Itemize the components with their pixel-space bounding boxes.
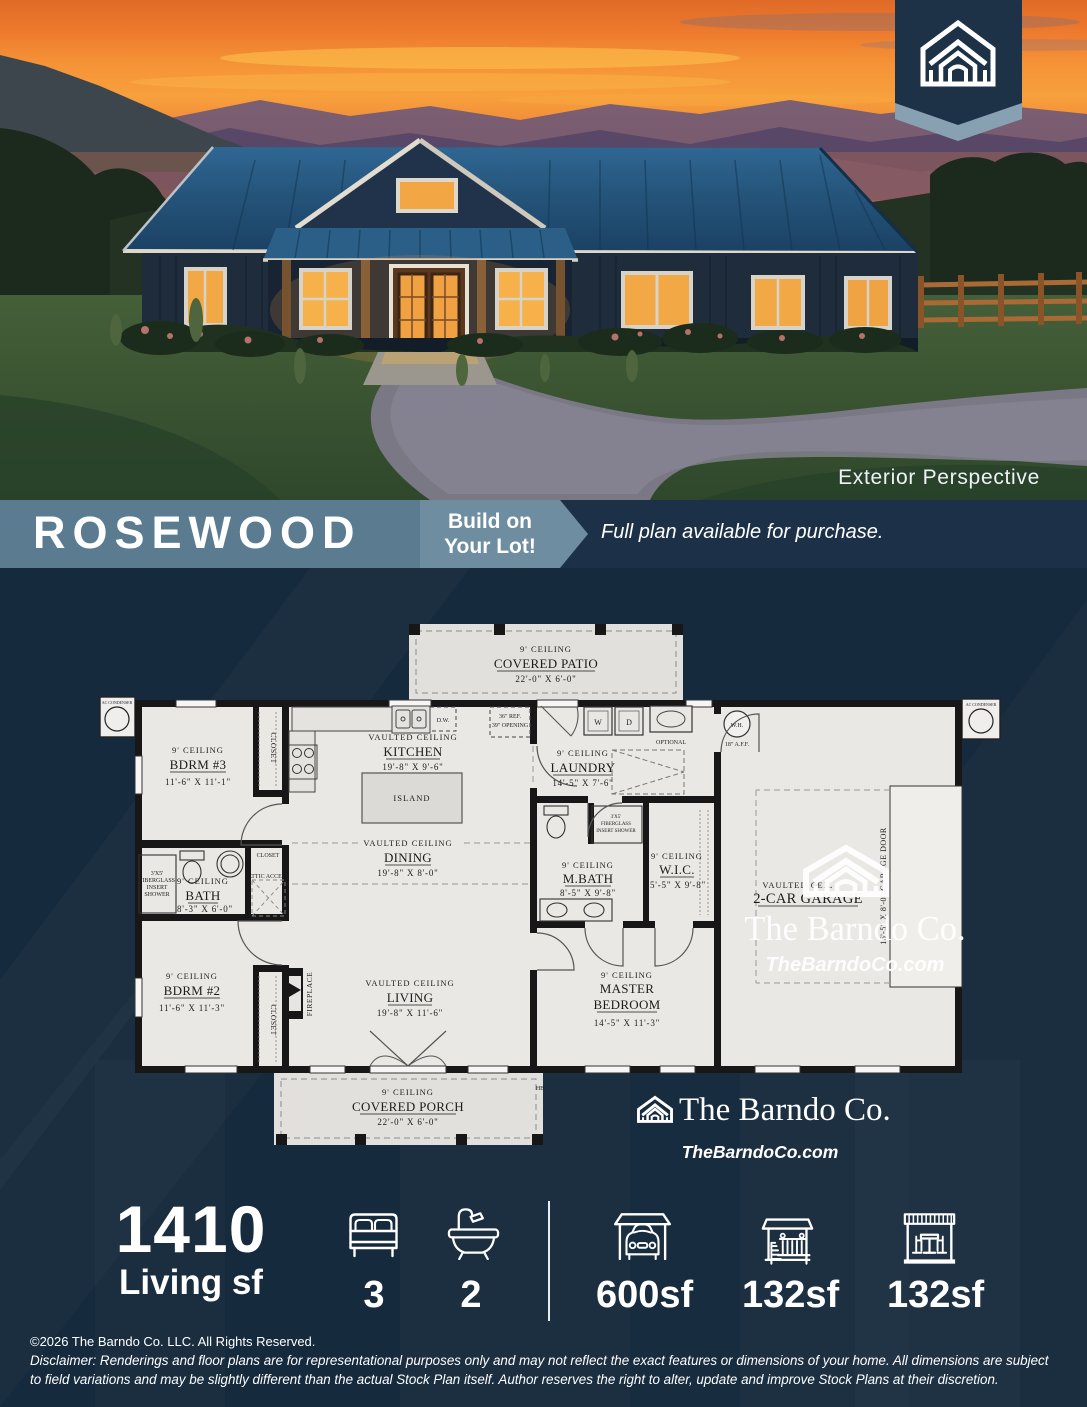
svg-text:14'-5" X 11'-3": 14'-5" X 11'-3" <box>594 1018 660 1028</box>
svg-text:AC CONDENSER: AC CONDENSER <box>102 700 133 705</box>
svg-text:W: W <box>594 718 602 727</box>
svg-text:22'-0" X 6'-0": 22'-0" X 6'-0" <box>377 1117 438 1127</box>
svg-text:W.H.: W.H. <box>731 723 744 729</box>
svg-text:9' CEILING: 9' CEILING <box>166 971 218 981</box>
svg-text:COVERED PATIO: COVERED PATIO <box>494 656 598 671</box>
svg-text:D.W.: D.W. <box>437 718 450 724</box>
svg-text:9' CEILING: 9' CEILING <box>172 745 224 755</box>
svg-text:VAULTED CEIL: VAULTED CEIL <box>762 880 833 890</box>
svg-text:OPTIONAL: OPTIONAL <box>656 740 686 746</box>
svg-text:BDRM #2: BDRM #2 <box>164 983 221 998</box>
svg-text:9' CEILING: 9' CEILING <box>651 851 703 861</box>
svg-text:SHOWER: SHOWER <box>144 892 169 898</box>
svg-text:VAULTED CEILING: VAULTED CEILING <box>363 838 452 848</box>
svg-text:19'-8" X 11'-6": 19'-8" X 11'-6" <box>377 1008 443 1018</box>
svg-text:FIBERGLASS: FIBERGLASS <box>601 822 631 827</box>
svg-text:36" REF.: 36" REF. <box>499 714 521 720</box>
svg-text:ATTIC ACCESS: ATTIC ACCESS <box>248 874 289 880</box>
svg-text:AC CONDENSER: AC CONDENSER <box>966 702 997 707</box>
svg-text:11'-6" X 11'-1": 11'-6" X 11'-1" <box>165 777 231 787</box>
svg-text:19'-8" X 8'-0": 19'-8" X 8'-0" <box>377 868 438 878</box>
svg-text:FIBERGLASS: FIBERGLASS <box>139 878 175 884</box>
svg-text:22'-0" X 6'-0": 22'-0" X 6'-0" <box>515 674 576 684</box>
svg-text:W.I.C.: W.I.C. <box>659 862 695 877</box>
svg-text:CLOSET: CLOSET <box>269 732 278 763</box>
svg-text:3'X5': 3'X5' <box>611 815 622 820</box>
svg-text:9' CEILING: 9' CEILING <box>557 748 609 758</box>
svg-text:8'-3" X 6'-0": 8'-3" X 6'-0" <box>177 904 233 914</box>
svg-text:VAULTED CEILING: VAULTED CEILING <box>365 978 454 988</box>
svg-text:COVERED PORCH: COVERED PORCH <box>352 1099 464 1114</box>
svg-text:TheBarndoCo.com: TheBarndoCo.com <box>766 954 945 976</box>
svg-text:5'-5" X 9'-8": 5'-5" X 9'-8" <box>650 880 706 890</box>
svg-text:11'-6" X 11'-3": 11'-6" X 11'-3" <box>159 1003 225 1013</box>
svg-text:39" OPENING: 39" OPENING <box>492 723 529 729</box>
svg-text:9' CEILING: 9' CEILING <box>177 876 229 886</box>
svg-text:8'-5" X 9'-8": 8'-5" X 9'-8" <box>560 888 616 898</box>
svg-text:HB: HB <box>536 1086 544 1092</box>
svg-text:CLOSET: CLOSET <box>257 853 280 859</box>
svg-text:ISLAND: ISLAND <box>393 793 430 803</box>
svg-text:The Barndo Co.: The Barndo Co. <box>744 910 965 948</box>
svg-text:9' CEILING: 9' CEILING <box>382 1087 434 1097</box>
svg-text:LIVING: LIVING <box>387 990 434 1005</box>
svg-text:CLOSET: CLOSET <box>269 1004 278 1035</box>
svg-text:18" A.F.F.: 18" A.F.F. <box>725 742 750 748</box>
svg-text:14'-5" X 7'-6": 14'-5" X 7'-6" <box>552 778 613 788</box>
svg-text:MASTER: MASTER <box>600 981 655 996</box>
svg-text:INSERT SHOWER: INSERT SHOWER <box>596 829 636 834</box>
svg-text:19'-8" X 9'-6": 19'-8" X 9'-6" <box>382 762 443 772</box>
svg-text:BDRM #3: BDRM #3 <box>170 757 227 772</box>
svg-text:KITCHEN: KITCHEN <box>383 744 442 759</box>
svg-text:9' CEILING: 9' CEILING <box>601 970 653 980</box>
svg-text:BATH: BATH <box>185 888 220 903</box>
svg-text:BEDROOM: BEDROOM <box>593 997 660 1012</box>
svg-text:9' CEILING: 9' CEILING <box>562 860 614 870</box>
svg-text:3'X5': 3'X5' <box>151 871 164 877</box>
svg-text:VAULTED CEILING: VAULTED CEILING <box>368 732 457 742</box>
svg-text:LAUNDRY: LAUNDRY <box>551 760 616 775</box>
svg-text:D: D <box>626 718 632 727</box>
svg-text:INSERT: INSERT <box>147 885 168 891</box>
svg-text:9' CEILING: 9' CEILING <box>520 644 572 654</box>
svg-text:FIREPLACE: FIREPLACE <box>305 972 314 1017</box>
svg-text:M.BATH: M.BATH <box>563 871 614 886</box>
svg-text:DINING: DINING <box>384 850 432 865</box>
